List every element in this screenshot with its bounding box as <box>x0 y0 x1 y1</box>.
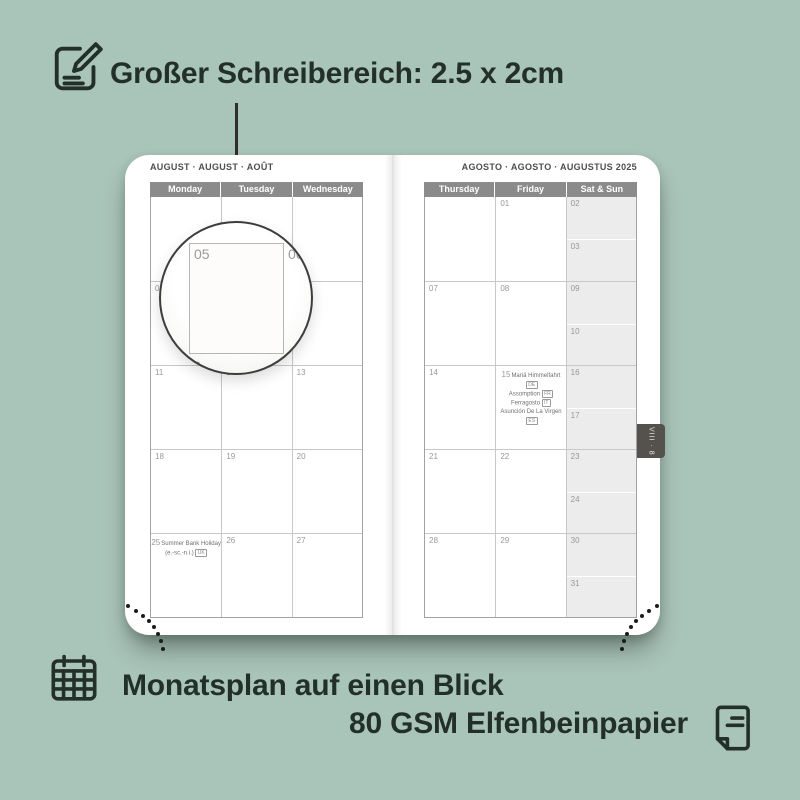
right-grid-body: 01 02 03 07 08 09 10 14 15Mariä Himmelfa <box>424 197 637 618</box>
date-number: 26 <box>222 534 291 545</box>
day-header: Wednesday <box>292 182 363 197</box>
sunday-half: 31 <box>567 576 636 618</box>
magnified-date-number: 05 <box>194 247 210 261</box>
stitch-dot <box>622 639 626 643</box>
date-number: 16 <box>567 366 636 377</box>
week-row: 14 15Mariä HimmelfahrtDE AssomptionFR Fe… <box>425 365 636 449</box>
calendar-cell: 11 <box>151 366 221 449</box>
day-header: Thursday <box>424 182 494 197</box>
calendar-cell: 01 <box>495 197 565 281</box>
weekend-cell: 23 24 <box>566 450 636 533</box>
date-number: 18 <box>151 450 221 461</box>
date-number: 27 <box>293 534 362 545</box>
saturday-half: 09 <box>567 282 636 324</box>
date-number: 29 <box>496 534 565 545</box>
date-number: 14 <box>425 366 495 377</box>
country-code-badge: DE <box>526 381 538 389</box>
date-number: 25 <box>151 538 160 547</box>
date-number: 02 <box>567 197 636 208</box>
date-number: 21 <box>425 450 495 461</box>
magnified-edge-fragment: 2 <box>193 359 201 373</box>
date-number: 28 <box>425 534 495 545</box>
stitch-dot <box>647 609 651 613</box>
date-number: 19 <box>222 450 291 461</box>
stitch-dot <box>629 625 633 629</box>
paper-caption: 80 GSM Elfenbeinpapier <box>349 707 688 741</box>
calendar-cell <box>425 197 495 281</box>
calendar-cell: 12 <box>221 366 291 449</box>
writing-area-caption: Großer Schreibereich: 2.5 x 2cm <box>110 57 564 91</box>
date-number: 01 <box>496 197 565 208</box>
day-header: Tuesday <box>220 182 291 197</box>
stitch-dot <box>655 604 659 608</box>
date-number: 31 <box>567 577 636 588</box>
paper-page-icon <box>704 701 758 755</box>
calendar-cell: 20 <box>292 450 362 533</box>
sunday-half: 24 <box>567 492 636 534</box>
product-image-canvas: { "colors": { "background": "#a9c4b9", "… <box>0 0 800 800</box>
date-number: 03 <box>567 240 636 251</box>
holiday-name: Mariä Himmelfahrt <box>511 373 560 379</box>
week-row: 01 02 03 <box>425 197 636 281</box>
stitch-dot <box>620 647 624 651</box>
stitch-dot <box>625 632 629 636</box>
date-number <box>151 197 221 200</box>
stitch-dot <box>126 604 130 608</box>
country-code-badge: UK <box>195 549 207 557</box>
calendar-cell: 29 <box>495 534 565 617</box>
left-day-header-row: Monday Tuesday Wednesday <box>150 182 363 197</box>
calendar-cell: 19 <box>221 450 291 533</box>
right-month-grid: Thursday Friday Sat & Sun 01 02 03 07 08… <box>424 182 637 618</box>
calendar-cell: 13 <box>292 366 362 449</box>
spine-crease <box>384 155 402 635</box>
calendar-cell: 28 <box>425 534 495 617</box>
calendar-cell: 14 <box>425 366 495 449</box>
weekend-cell: 09 10 <box>566 282 636 365</box>
calendar-cell: 22 <box>495 450 565 533</box>
saturday-half: 16 <box>567 366 636 408</box>
note-pencil-icon <box>49 38 107 96</box>
magnified-edge-fragment: y <box>161 247 168 261</box>
weekend-cell: 30 31 <box>566 534 636 617</box>
date-number: 10 <box>567 325 636 336</box>
country-code-badge: IT <box>542 399 551 407</box>
holiday-name: Assomption <box>509 392 540 398</box>
holiday-name: Asunción De La Virgen <box>500 409 561 415</box>
right-day-header-row: Thursday Friday Sat & Sun <box>424 182 637 197</box>
calendar-cell: 08 <box>495 282 565 365</box>
calendar-cell: 18 <box>151 450 221 533</box>
weekend-cell: 16 17 <box>566 366 636 449</box>
date-number: 22 <box>496 450 565 461</box>
holiday-name: Ferragosto <box>511 401 540 407</box>
weekend-cell: 02 03 <box>566 197 636 281</box>
magnified-date-number: 06 <box>288 247 304 261</box>
day-header: Sat & Sun <box>566 182 637 197</box>
stitch-dot <box>159 639 163 643</box>
stitch-dot <box>156 632 160 636</box>
week-row: 28 29 30 31 <box>425 533 636 617</box>
country-code-badge: FR <box>542 390 554 398</box>
calendar-cell: 26 <box>221 534 291 617</box>
month-tab-label: VIII · 8 <box>648 427 655 456</box>
date-number: 08 <box>496 282 565 293</box>
date-number <box>222 197 291 200</box>
planner-notebook: AUGUST · AUGUST · AOÛT Monday Tuesday We… <box>125 155 660 635</box>
date-number <box>425 197 495 200</box>
week-row: 07 08 09 10 <box>425 281 636 365</box>
saturday-half: 23 <box>567 450 636 492</box>
month-index-tab: VIII · 8 <box>637 424 665 458</box>
date-number: 20 <box>293 450 362 461</box>
stitch-dot <box>640 614 644 618</box>
week-row: 21 22 23 24 <box>425 449 636 533</box>
date-number: 09 <box>567 282 636 293</box>
stitch-dot <box>161 647 165 651</box>
sunday-half: 10 <box>567 324 636 366</box>
right-page-title: AGOSTO · AGOSTO · AUGUSTUS 2025 <box>424 162 637 172</box>
date-number: 30 <box>567 534 636 545</box>
stitch-dot <box>141 614 145 618</box>
date-number: 17 <box>567 409 636 420</box>
stitch-dot <box>147 619 151 623</box>
day-header: Monday <box>150 182 220 197</box>
date-number <box>293 197 362 200</box>
holiday-name: Summer Bank Holiday <box>161 541 221 547</box>
sunday-half: 03 <box>567 239 636 281</box>
calendar-cell: 27 <box>292 534 362 617</box>
date-number: 07 <box>425 282 495 293</box>
stitch-dot <box>634 619 638 623</box>
saturday-half: 02 <box>567 197 636 239</box>
week-row: 18 19 20 <box>151 449 362 533</box>
week-row: 25Summer Bank Holiday (e.-sc.-n.i.)UK 26… <box>151 533 362 617</box>
date-number: 23 <box>567 450 636 461</box>
left-page-title: AUGUST · AUGUST · AOÛT <box>150 162 273 172</box>
sunday-half: 17 <box>567 408 636 450</box>
calendar-cell-assumption-holidays: 15Mariä HimmelfahrtDE AssomptionFR Ferra… <box>495 366 565 449</box>
holiday-entry: 15Mariä HimmelfahrtDE AssomptionFR Ferra… <box>496 366 565 426</box>
calendar-cell: 21 <box>425 450 495 533</box>
week-row: 11 12 13 <box>151 365 362 449</box>
day-header: Friday <box>494 182 565 197</box>
country-code-badge: ES <box>526 417 538 425</box>
holiday-region: (e.-sc.-n.i.) <box>165 550 194 556</box>
calendar-grid-icon <box>47 652 101 706</box>
stitch-dot <box>134 609 138 613</box>
magnifier-circle: 05 06 y 2 <box>159 221 313 375</box>
date-number: 24 <box>567 493 636 504</box>
calendar-cell-summer-bank-holiday: 25Summer Bank Holiday (e.-sc.-n.i.)UK <box>151 534 221 617</box>
month-glance-caption: Monatsplan auf einen Blick <box>122 669 504 703</box>
stitch-dot <box>152 625 156 629</box>
calendar-cell: 07 <box>425 282 495 365</box>
date-number: 15 <box>502 370 511 379</box>
date-number: 13 <box>293 366 362 377</box>
saturday-half: 30 <box>567 534 636 576</box>
holiday-entry: 25Summer Bank Holiday (e.-sc.-n.i.)UK <box>151 534 221 558</box>
